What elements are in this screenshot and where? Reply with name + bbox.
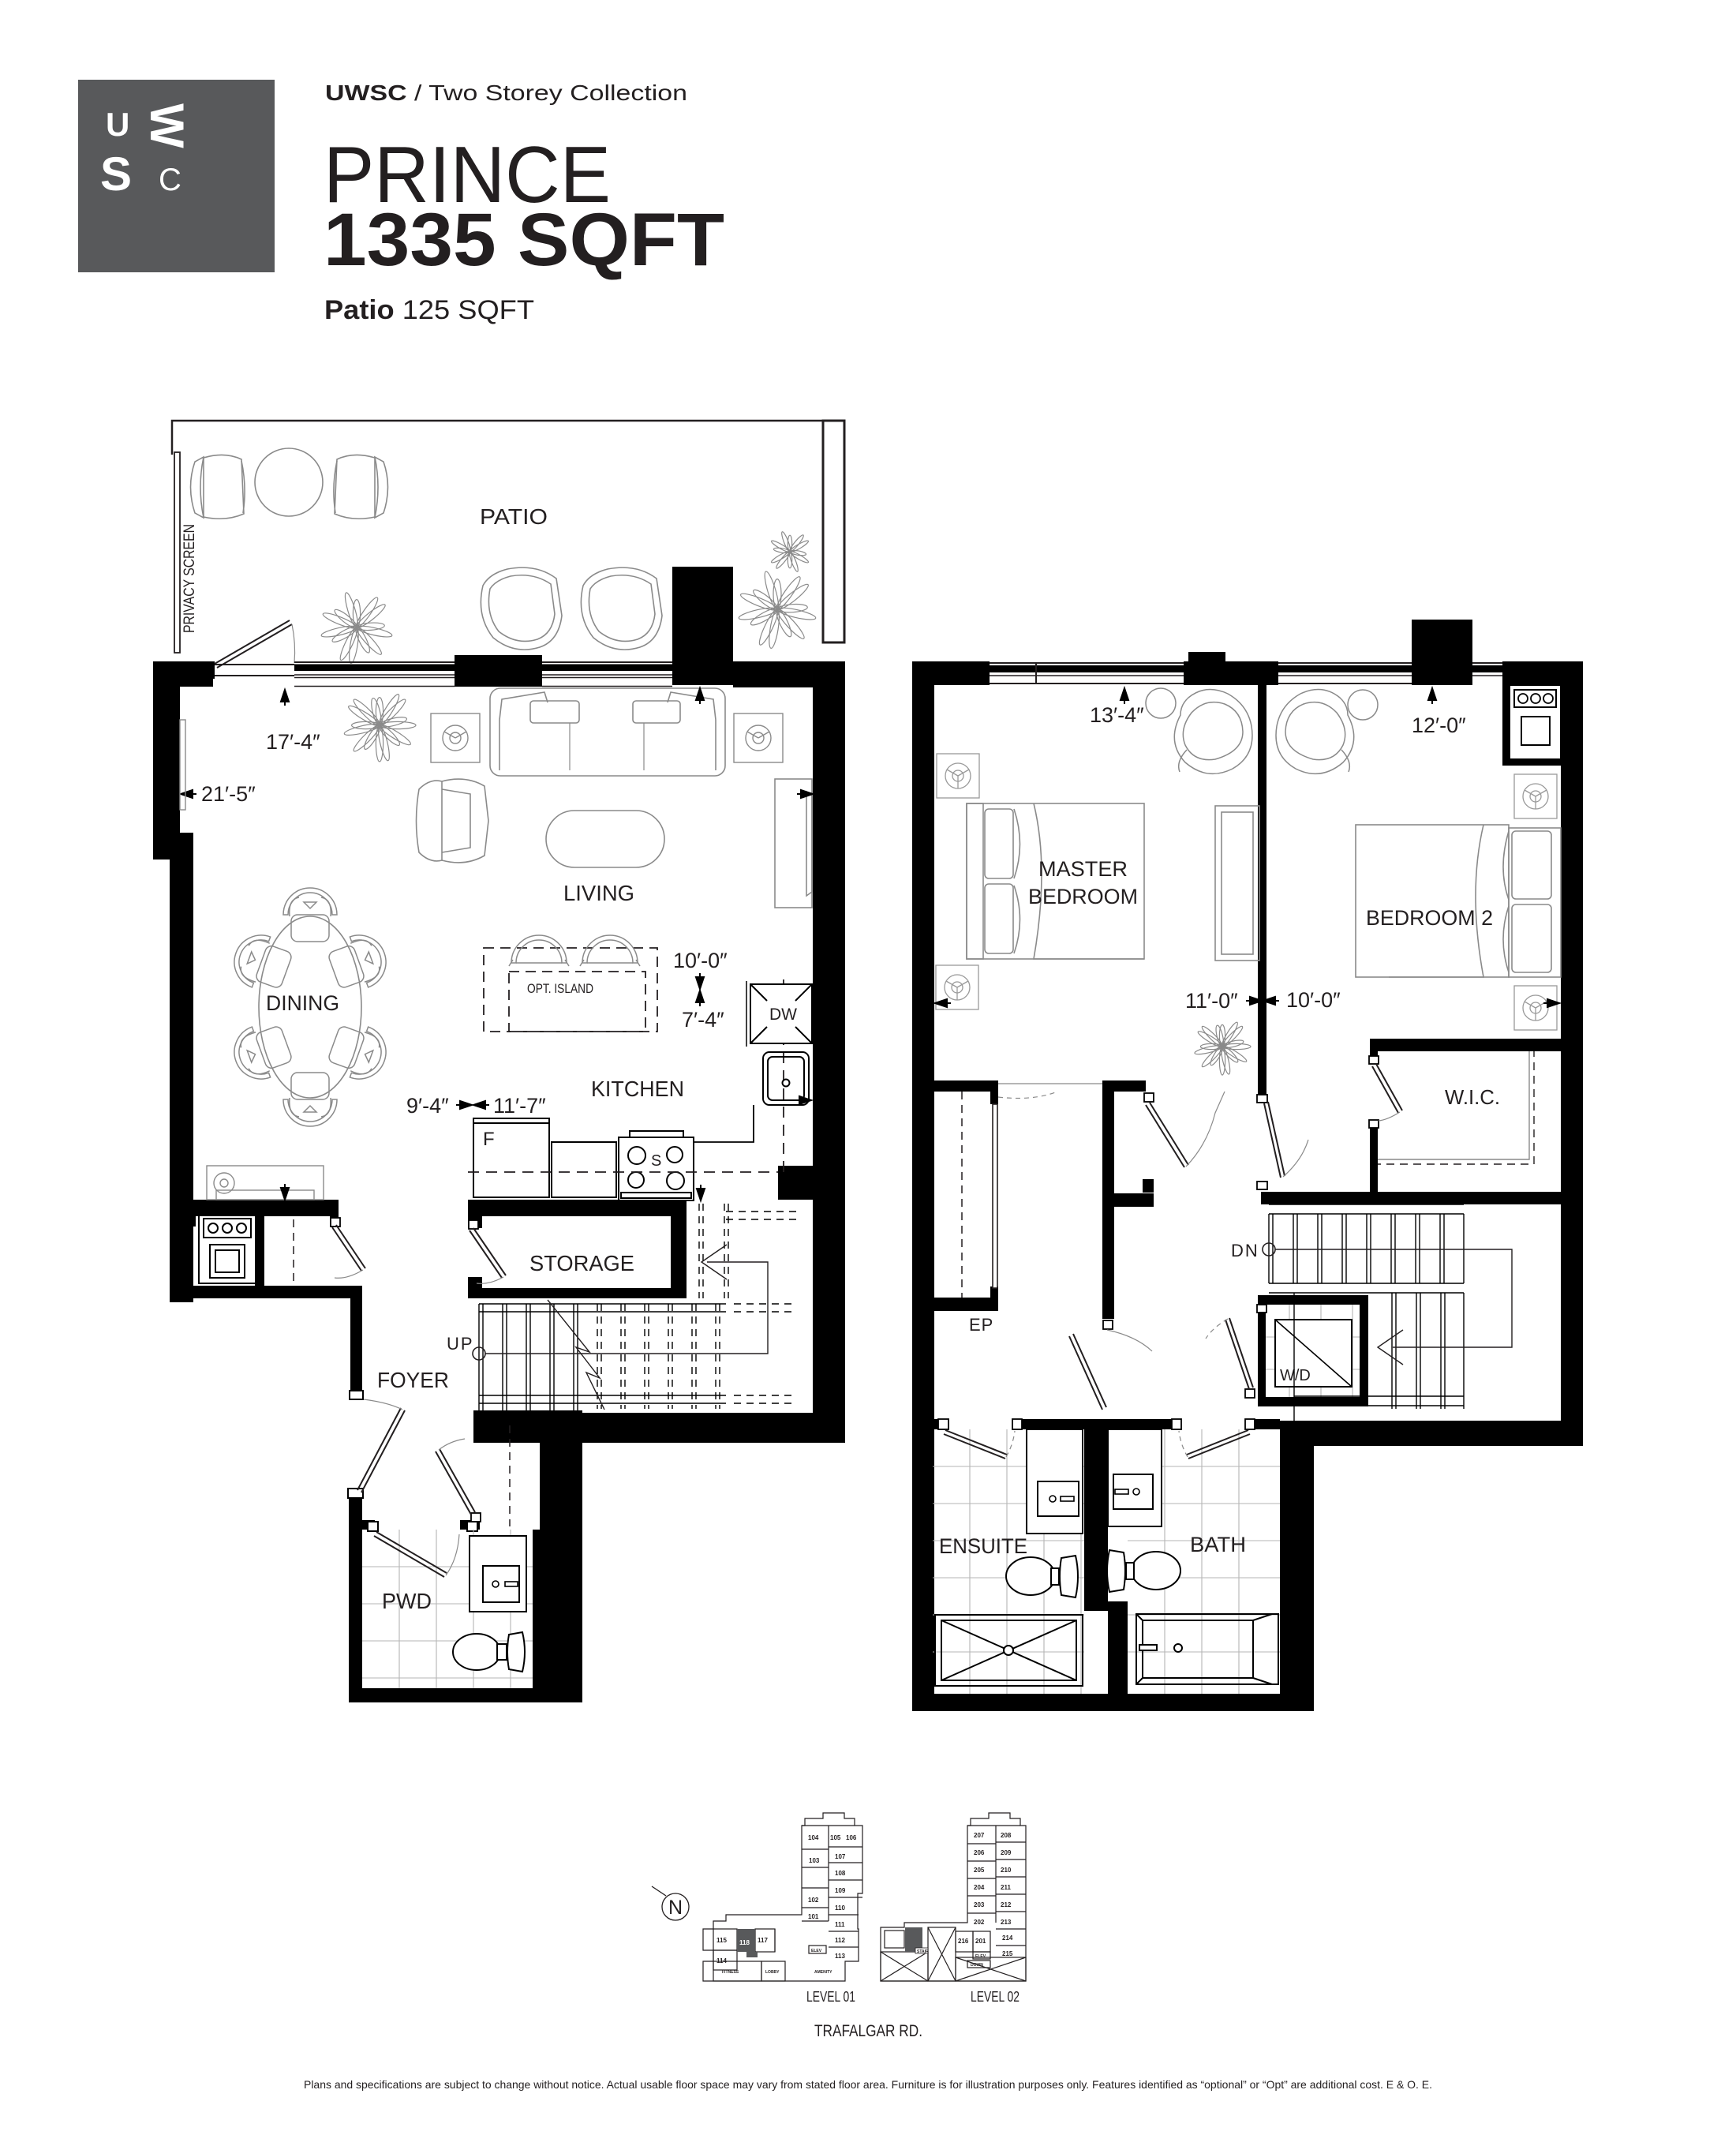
- svg-text:Patio 125 SQFT: Patio 125 SQFT: [324, 295, 534, 325]
- svg-text:9′-4″: 9′-4″: [406, 1094, 449, 1118]
- svg-text:117: 117: [758, 1937, 768, 1944]
- svg-text:PATIO: PATIO: [480, 504, 548, 529]
- svg-text:214: 214: [1002, 1934, 1013, 1942]
- svg-text:N: N: [668, 1897, 683, 1919]
- svg-text:S: S: [651, 1152, 661, 1170]
- svg-text:LOBBY: LOBBY: [765, 1970, 780, 1975]
- svg-text:115: 115: [716, 1937, 727, 1944]
- svg-text:7′-4″: 7′-4″: [682, 1008, 724, 1032]
- svg-text:102: 102: [808, 1897, 819, 1904]
- svg-text:108: 108: [835, 1870, 846, 1877]
- svg-text:118: 118: [739, 1939, 750, 1946]
- svg-text:205: 205: [974, 1867, 985, 1874]
- svg-text:10′-0″: 10′-0″: [1286, 988, 1341, 1012]
- svg-text:Plans and specifications are s: Plans and specifications are subject to …: [304, 2078, 1432, 2091]
- svg-text:110: 110: [835, 1904, 845, 1912]
- svg-text:17′-4″: 17′-4″: [266, 730, 320, 754]
- svg-text:OPT. ISLAND: OPT. ISLAND: [527, 981, 593, 996]
- svg-text:FOYER: FOYER: [377, 1368, 449, 1392]
- svg-text:PRIVACY SCREEN: PRIVACY SCREEN: [181, 524, 198, 633]
- svg-text:11′-0″: 11′-0″: [1185, 989, 1238, 1013]
- svg-text:210: 210: [1001, 1867, 1012, 1874]
- svg-text:209: 209: [1001, 1849, 1012, 1856]
- svg-text:W: W: [140, 103, 193, 148]
- svg-text:215: 215: [1002, 1950, 1013, 1957]
- svg-text:114: 114: [716, 1957, 727, 1964]
- svg-text:BATH: BATH: [1190, 1533, 1246, 1556]
- svg-text:UWSC / Two Storey Collection: UWSC / Two Storey Collection: [325, 81, 687, 105]
- svg-text:C: C: [159, 163, 181, 197]
- svg-text:207: 207: [974, 1832, 985, 1839]
- svg-text:21′-5″: 21′-5″: [201, 782, 256, 806]
- svg-text:STAIR: STAIR: [917, 1949, 929, 1954]
- svg-text:ELEV: ELEV: [975, 1954, 986, 1959]
- svg-text:111: 111: [835, 1921, 845, 1928]
- svg-text:204: 204: [974, 1884, 985, 1891]
- svg-text:ENSUITE: ENSUITE: [939, 1534, 1027, 1558]
- svg-text:LIVING: LIVING: [563, 881, 634, 905]
- svg-text:ELEV: ELEV: [811, 1949, 822, 1953]
- svg-text:106: 106: [846, 1834, 857, 1841]
- svg-text:S: S: [100, 148, 132, 200]
- svg-text:206: 206: [974, 1849, 985, 1856]
- svg-text:W.I.C.: W.I.C.: [1445, 1085, 1500, 1109]
- svg-text:216: 216: [958, 1938, 969, 1945]
- svg-text:DINING: DINING: [266, 991, 339, 1015]
- svg-text:DOWN: DOWN: [971, 1963, 983, 1968]
- svg-text:105: 105: [830, 1834, 841, 1841]
- svg-text:212: 212: [1001, 1901, 1012, 1908]
- svg-text:STORAGE: STORAGE: [529, 1251, 634, 1275]
- svg-text:UP: UP: [447, 1334, 474, 1354]
- svg-text:112: 112: [835, 1937, 845, 1944]
- svg-text:LEVEL 02: LEVEL 02: [971, 1989, 1020, 2005]
- svg-text:AMENITY: AMENITY: [814, 1970, 832, 1975]
- svg-text:MASTER: MASTER: [1038, 857, 1128, 881]
- svg-text:201: 201: [975, 1938, 986, 1945]
- svg-text:BEDROOM: BEDROOM: [1028, 885, 1138, 908]
- svg-text:F: F: [483, 1129, 495, 1150]
- svg-text:DN: DN: [1231, 1241, 1259, 1260]
- svg-text:PWD: PWD: [382, 1589, 432, 1613]
- svg-text:BEDROOM 2: BEDROOM 2: [1366, 906, 1493, 930]
- svg-text:DW: DW: [769, 1006, 797, 1024]
- svg-text:103: 103: [809, 1857, 820, 1864]
- svg-text:W/D: W/D: [1280, 1367, 1311, 1384]
- svg-text:202: 202: [974, 1919, 985, 1926]
- svg-text:208: 208: [1001, 1832, 1012, 1839]
- svg-text:104: 104: [808, 1834, 819, 1841]
- svg-text:13′-4″: 13′-4″: [1090, 703, 1144, 727]
- svg-text:FITNESS: FITNESS: [722, 1970, 739, 1975]
- svg-text:113: 113: [835, 1953, 845, 1960]
- svg-text:10′-0″: 10′-0″: [673, 949, 728, 972]
- svg-text:109: 109: [835, 1887, 846, 1894]
- svg-text:TRAFALGAR RD.: TRAFALGAR RD.: [814, 2022, 922, 2040]
- svg-text:211: 211: [1001, 1884, 1011, 1891]
- svg-text:101: 101: [808, 1913, 819, 1920]
- svg-text:1335 SQFT: 1335 SQFT: [324, 198, 724, 282]
- svg-text:LEVEL 01: LEVEL 01: [806, 1989, 855, 2005]
- svg-text:U: U: [106, 106, 129, 143]
- svg-text:203: 203: [974, 1901, 985, 1908]
- svg-text:12′-0″: 12′-0″: [1412, 713, 1466, 737]
- svg-text:107: 107: [835, 1853, 846, 1860]
- svg-text:KITCHEN: KITCHEN: [591, 1077, 684, 1101]
- svg-text:11′-7″: 11′-7″: [493, 1094, 546, 1118]
- svg-text:EP: EP: [969, 1315, 993, 1335]
- svg-text:213: 213: [1001, 1919, 1012, 1926]
